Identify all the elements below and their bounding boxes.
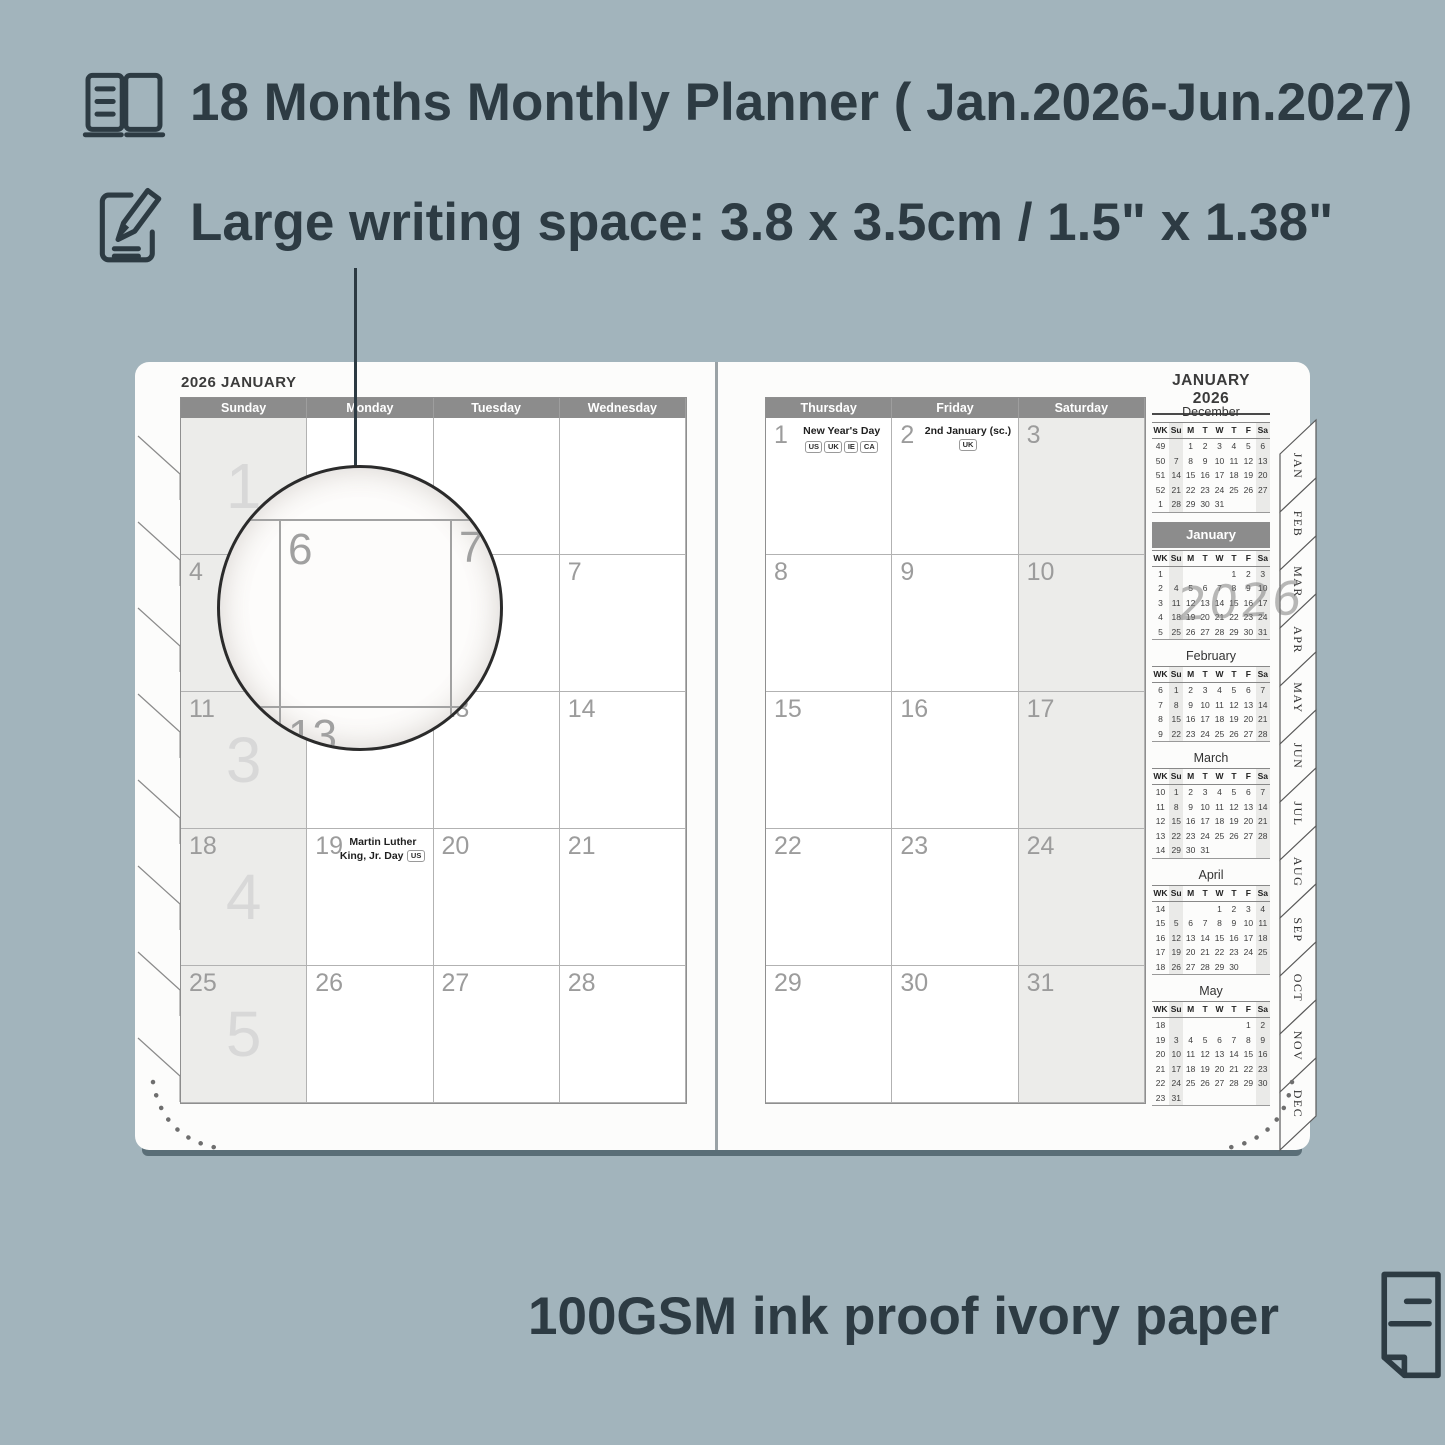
mini-calendar-cell: 20 (1183, 945, 1197, 960)
mini-calendar-cell: 27 (1256, 483, 1270, 498)
mini-calendar-cell: 10 (1152, 785, 1169, 800)
mini-calendar-cell: 6 (1256, 439, 1270, 454)
mini-calendar-cell: 7 (1169, 454, 1183, 469)
date-number: 27 (442, 971, 470, 996)
hatch-line (138, 1038, 180, 1076)
calendar-cell (560, 418, 686, 555)
month-tab-label: SEP (1291, 917, 1305, 942)
mini-calendar-cell: 1 (1183, 439, 1197, 454)
mini-calendar-header-cell: T (1227, 768, 1241, 785)
mini-calendar-cell: 10 (1169, 1047, 1183, 1062)
hatch-line (138, 694, 180, 732)
mini-calendar: FebruaryWKSuMTWTFSa612345677891011121314… (1152, 649, 1270, 742)
mini-calendar-cell (1212, 1018, 1226, 1033)
mini-calendar-cell (1227, 497, 1241, 512)
mini-calendar-header-cell: W (1212, 768, 1226, 785)
date-number: 21 (568, 834, 596, 859)
feature-planner-range-text: 18 Months Monthly Planner ( Jan.2026-Jun… (190, 72, 1412, 133)
mini-calendar-cell: 12 (1152, 814, 1169, 829)
mini-calendar-header-cell: Su (1169, 550, 1183, 567)
mini-calendar-cell: 3 (1198, 683, 1212, 698)
calendar-cell: 7 (560, 555, 686, 692)
country-badge: US (805, 441, 822, 453)
date-number: 7 (568, 560, 582, 585)
week-number: 5 (181, 966, 306, 1102)
mini-calendar-cell: 20 (1152, 1047, 1169, 1062)
mini-calendar-cell: 24 (1169, 1076, 1183, 1091)
mini-calendar-cell: 9 (1256, 1033, 1270, 1048)
page-edge-hatch (136, 428, 182, 1128)
mini-calendar-cell: 13 (1256, 454, 1270, 469)
mini-calendar-cell: 9 (1183, 698, 1197, 713)
mini-calendar-cell (1212, 1091, 1226, 1106)
mini-calendar-header-cell: WK (1152, 550, 1169, 567)
date-number: 26 (315, 971, 343, 996)
mini-calendar-cell: 14 (1198, 931, 1212, 946)
mini-calendar-cell: 2 (1198, 439, 1212, 454)
feature-writing-space-text: Large writing space: 3.8 x 3.5cm / 1.5" … (190, 192, 1333, 253)
mini-calendar-cell: 9 (1198, 454, 1212, 469)
mini-calendar-cell: 14 (1227, 1047, 1241, 1062)
mini-calendar-header-cell: Su (1169, 1001, 1183, 1018)
mini-calendar-cell: 11 (1183, 1047, 1197, 1062)
mini-calendar-cell: 18 (1256, 931, 1270, 946)
feature-paper-text: 100GSM ink proof ivory paper (528, 1286, 1279, 1347)
mini-calendar-cell: 23 (1227, 945, 1241, 960)
mini-calendar-cell: 30 (1198, 497, 1212, 512)
date-number: 23 (900, 834, 928, 859)
mini-calendar-cell: 16 (1152, 931, 1169, 946)
mini-calendar-cell: 19 (1227, 712, 1241, 727)
mini-calendar-cell: 15 (1183, 468, 1197, 483)
mini-calendar-header-cell: T (1198, 422, 1212, 439)
mini-calendar-cell: 28 (1169, 497, 1183, 512)
mini-calendar-cell: 30 (1227, 960, 1241, 975)
mini-calendar-header-cell: T (1227, 1001, 1241, 1018)
date-number: 14 (568, 697, 596, 722)
mini-calendar-cell: 18 (1152, 1018, 1169, 1033)
mini-calendar-cell: 51 (1152, 468, 1169, 483)
mini-calendar-cell: 5 (1152, 625, 1169, 640)
mini-calendar-cell: 28 (1256, 727, 1270, 742)
magnifier-circle: 6 7 13 (217, 465, 503, 751)
mini-calendar-cell: 4 (1212, 683, 1226, 698)
mini-calendar: DecemberWKSuMTWTFSa491234565078910111213… (1152, 405, 1270, 513)
mini-calendar-cell: 21 (1169, 483, 1183, 498)
mini-calendar-cell: 16 (1198, 468, 1212, 483)
mini-calendar-cell: 20 (1241, 712, 1255, 727)
magnifier-grid-line (220, 706, 500, 708)
mini-calendar-header-cell: WK (1152, 1001, 1169, 1018)
mini-calendar-header-cell: Sa (1256, 422, 1270, 439)
mini-calendar-header-cell: F (1241, 422, 1255, 439)
mini-calendar-cell: 18 (1152, 960, 1169, 975)
mini-calendar-cell: 22 (1241, 1062, 1255, 1077)
calendar-cell: 1New Year's DayUSUKIECA (766, 418, 892, 555)
mini-calendar-cell: 52 (1152, 483, 1169, 498)
mini-calendar-title: May (1152, 984, 1270, 998)
mini-calendar-cell: 19 (1198, 1062, 1212, 1077)
mini-calendar-cell: 29 (1183, 497, 1197, 512)
mini-calendar-table: WKSuMTWTFSa18121934567892010111213141516… (1152, 1001, 1270, 1106)
date-number: 1 (774, 423, 788, 448)
mini-calendar-cell: 17 (1198, 712, 1212, 727)
mini-calendar-cell: 13 (1183, 931, 1197, 946)
holiday-badges: USUKIECA (794, 441, 889, 455)
year-watermark: 2026 (1175, 571, 1306, 631)
mini-calendar-cell: 14 (1256, 800, 1270, 815)
date-number: 3 (1027, 423, 1041, 448)
calendar-cell: 255 (181, 966, 307, 1103)
holiday-label: New Year's DayUSUKIECA (794, 425, 889, 454)
mini-calendar-cell: 22 (1183, 483, 1197, 498)
mini-calendar-cell: 29 (1212, 960, 1226, 975)
mini-calendar-header-cell: M (1183, 550, 1197, 567)
date-number: 24 (1027, 834, 1055, 859)
mini-calendar-cell: 16 (1227, 931, 1241, 946)
mini-calendar-cell: 12 (1169, 931, 1183, 946)
callout-connector-line (354, 268, 357, 470)
mini-calendar-header-cell: F (1241, 550, 1255, 567)
open-book-icon (78, 70, 170, 142)
mini-calendar-header-cell: Su (1169, 666, 1183, 683)
mini-calendar-header-cell: WK (1152, 885, 1169, 902)
mini-calendar-cell: 27 (1212, 1076, 1226, 1091)
mini-calendar-cell: 19 (1152, 1033, 1169, 1048)
mini-calendar-cell: 27 (1241, 829, 1255, 844)
day-header-cell: Monday (307, 398, 433, 418)
mini-calendar-cell: 1 (1169, 785, 1183, 800)
date-number: 16 (900, 697, 928, 722)
mini-calendar-cell (1198, 1091, 1212, 1106)
left-page-title: 2026 JANUARY (181, 374, 297, 391)
calendar-cell: 24 (1019, 829, 1145, 966)
mini-calendar-cell: 7 (1152, 698, 1169, 713)
mini-calendar-cell: 14 (1152, 843, 1169, 858)
mini-calendar-cell (1256, 497, 1270, 512)
mini-calendar-header-cell: M (1183, 885, 1197, 902)
mini-calendar-cell: 5 (1227, 683, 1241, 698)
pencil-note-icon (94, 172, 168, 270)
mini-calendar-cell: 13 (1241, 698, 1255, 713)
mini-calendar-cell (1169, 439, 1183, 454)
mini-calendar-cell: 16 (1183, 814, 1197, 829)
mini-calendar-cell: 22 (1152, 1076, 1169, 1091)
mini-calendar-cell: 7 (1256, 785, 1270, 800)
mini-calendar-cell: 49 (1152, 439, 1169, 454)
mini-calendar-header-cell: Su (1169, 422, 1183, 439)
hatch-line (138, 780, 180, 818)
calendar-cell: 30 (892, 966, 1018, 1103)
mini-calendar-cell: 23 (1152, 1091, 1169, 1106)
mini-calendar-cell: 15 (1169, 814, 1183, 829)
mini-calendar-cell: 26 (1198, 1076, 1212, 1091)
magnifier-grid-line (279, 519, 281, 748)
mini-calendar-cell: 22 (1169, 727, 1183, 742)
mini-calendar-cell: 18 (1227, 468, 1241, 483)
mini-calendar-header-cell: W (1212, 422, 1226, 439)
mini-calendar-cell: 20 (1256, 468, 1270, 483)
mini-calendar-cell (1241, 960, 1255, 975)
date-number: 2 (900, 423, 914, 448)
holiday-label: Martin Luther King, Jr. Day US (335, 836, 430, 863)
mini-calendar-cell: 11 (1212, 800, 1226, 815)
mini-calendar-header-cell: M (1183, 768, 1197, 785)
date-number: 8 (774, 560, 788, 585)
mini-calendar-cell: 5 (1198, 1033, 1212, 1048)
calendar-cell: 23 (892, 829, 1018, 966)
hatch-line (138, 866, 180, 904)
mini-calendar-header-cell: WK (1152, 768, 1169, 785)
mini-calendar-cell: 27 (1241, 727, 1255, 742)
calendar-cell: 31 (1019, 966, 1145, 1103)
mini-calendar-cell: 12 (1227, 698, 1241, 713)
mini-calendar-cell: 4 (1183, 1033, 1197, 1048)
country-badge: UK (959, 439, 977, 451)
mini-calendar-cell: 23 (1256, 1062, 1270, 1077)
mini-calendar-cell (1256, 843, 1270, 858)
calendar-cell: 26 (307, 966, 433, 1103)
mini-calendar-cell: 29 (1241, 1076, 1255, 1091)
mini-calendar-cell: 8 (1241, 1033, 1255, 1048)
holiday-label: 2nd January (sc.) UK (920, 425, 1015, 452)
day-header-cell: Thursday (766, 398, 892, 418)
mini-calendar-cell: 28 (1198, 960, 1212, 975)
mini-calendar-table: WKSuMTWTFSa49123456507891011121351141516… (1152, 422, 1270, 513)
day-header-cell: Saturday (1019, 398, 1145, 418)
mini-calendar-cell: 20 (1212, 1062, 1226, 1077)
mini-calendar-cell: 11 (1256, 916, 1270, 931)
mini-calendar-cell: 25 (1183, 1076, 1197, 1091)
month-tab-label: JAN (1291, 453, 1305, 480)
mini-calendar-cell: 8 (1183, 454, 1197, 469)
mini-calendar-cell: 9 (1227, 916, 1241, 931)
mini-calendar-cell: 1 (1212, 902, 1226, 917)
mini-calendar-cell: 22 (1212, 945, 1226, 960)
calendar-cell: 27 (434, 966, 560, 1103)
month-tab-label: AUG (1291, 857, 1305, 888)
mini-calendar-cell: 10 (1241, 916, 1255, 931)
mini-calendar-table: WKSuMTWTFSa14123415567891011161213141516… (1152, 885, 1270, 976)
mini-calendar-header-cell: Su (1169, 885, 1183, 902)
mini-calendar-cell: 25 (1256, 945, 1270, 960)
mini-calendar-cell: 21 (1256, 814, 1270, 829)
mini-calendar-cell (1241, 1091, 1255, 1106)
mini-calendar-cell (1183, 1091, 1197, 1106)
mini-calendar-header-cell: Sa (1256, 550, 1270, 567)
mini-calendar-cell: 11 (1212, 698, 1226, 713)
mini-calendar-cell: 4 (1227, 439, 1241, 454)
mini-calendar-cell (1169, 902, 1183, 917)
mini-calendar-cell: 8 (1152, 712, 1169, 727)
mini-calendar-sidebar: DecemberWKSuMTWTFSa491234565078910111213… (1152, 405, 1270, 1115)
mini-calendar-cell: 4 (1256, 902, 1270, 917)
calendar-cell: 17 (1019, 692, 1145, 829)
mini-calendar-cell: 15 (1169, 712, 1183, 727)
mini-calendar-cell (1256, 1091, 1270, 1106)
mini-calendar-cell: 17 (1241, 931, 1255, 946)
mini-calendar-cell: 2 (1152, 581, 1169, 596)
month-tab-label: APR (1291, 626, 1305, 654)
mini-calendar-cell: 3 (1198, 785, 1212, 800)
month-tab-label: FEB (1291, 511, 1305, 538)
mini-calendar-cell: 17 (1212, 468, 1226, 483)
mini-calendar-cell (1227, 843, 1241, 858)
mini-calendar-table: WKSuMTWTFSa61234567789101112131481516171… (1152, 666, 1270, 742)
mini-calendar-title: February (1152, 649, 1270, 663)
mini-calendar-cell: 3 (1169, 1033, 1183, 1048)
mini-calendar-cell: 2 (1183, 785, 1197, 800)
mini-calendar-header-cell: T (1227, 550, 1241, 567)
mini-calendar-header-cell: F (1241, 885, 1255, 902)
calendar-cell: 28 (560, 966, 686, 1103)
mini-calendar-cell: 23 (1183, 727, 1197, 742)
mini-calendar-header-cell: T (1227, 885, 1241, 902)
date-number: 9 (900, 560, 914, 585)
mini-calendar-cell: 20 (1241, 814, 1255, 829)
magnifier-grid-line (450, 519, 452, 748)
day-header-cell: Friday (892, 398, 1018, 418)
mini-calendar-cell: 10 (1198, 698, 1212, 713)
mini-calendar-cell: 12 (1241, 454, 1255, 469)
mini-calendar-header-cell: T (1198, 550, 1212, 567)
mini-calendar-cell: 3 (1152, 596, 1169, 611)
mini-calendar-cell: 26 (1227, 727, 1241, 742)
mini-calendar-cell (1241, 843, 1255, 858)
mini-calendar-title: April (1152, 868, 1270, 882)
date-number: 17 (1027, 697, 1055, 722)
calendar-cell: 22 (766, 829, 892, 966)
mini-calendar-cell: 1 (1241, 1018, 1255, 1033)
date-number: 10 (1027, 560, 1055, 585)
month-tab-label: JUN (1291, 743, 1305, 770)
mini-calendar-cell: 17 (1169, 1062, 1183, 1077)
calendar-cell: 29 (766, 966, 892, 1103)
day-header-cell: Wednesday (560, 398, 686, 418)
mini-calendar-cell: 21 (1152, 1062, 1169, 1077)
mini-calendar-cell: 8 (1169, 800, 1183, 815)
calendar-cell: 9 (892, 555, 1018, 692)
mini-calendar-header-cell: Su (1169, 768, 1183, 785)
mini-calendar-cell: 22 (1169, 829, 1183, 844)
mini-calendar-header-cell: Sa (1256, 1001, 1270, 1018)
mini-calendar-cell: 2 (1256, 1018, 1270, 1033)
month-tab-label: MAY (1291, 682, 1305, 713)
mini-calendar-header-cell: T (1198, 885, 1212, 902)
hatch-line (138, 522, 180, 560)
mini-calendar-cell: 5 (1241, 439, 1255, 454)
mini-calendar-cell: 28 (1256, 829, 1270, 844)
mini-calendar-cell: 18 (1183, 1062, 1197, 1077)
mini-calendar-cell: 24 (1212, 483, 1226, 498)
mini-calendar: AprilWKSuMTWTFSa141234155678910111612131… (1152, 868, 1270, 976)
mini-calendar-cell: 1 (1152, 567, 1169, 582)
mini-calendar-cell: 26 (1241, 483, 1255, 498)
mini-calendar-cell: 4 (1212, 785, 1226, 800)
month-tab-label: OCT (1291, 974, 1305, 1003)
mini-calendar-cell: 14 (1169, 468, 1183, 483)
mini-calendar-cell (1241, 497, 1255, 512)
mini-calendar-cell: 31 (1169, 1091, 1183, 1106)
mini-calendar-title: December (1152, 405, 1270, 419)
mini-calendar-header-cell: M (1183, 666, 1197, 683)
country-badge: CA (860, 441, 878, 453)
hatch-line (138, 608, 180, 646)
calendar-cell: 19Martin Luther King, Jr. Day US (307, 829, 433, 966)
mini-calendar-cell: 13 (1212, 1047, 1226, 1062)
mini-calendar: MayWKSuMTWTFSa18121934567892010111213141… (1152, 984, 1270, 1106)
date-number: 30 (900, 971, 928, 996)
mini-calendar-title: January (1152, 522, 1270, 548)
mini-calendar-cell: 28 (1227, 1076, 1241, 1091)
mini-calendar-header-cell: W (1212, 666, 1226, 683)
mini-calendar-cell: 25 (1227, 483, 1241, 498)
mini-calendar-cell: 27 (1183, 960, 1197, 975)
mini-calendar-cell: 29 (1169, 843, 1183, 858)
mini-calendar-cell (1198, 902, 1212, 917)
mini-calendar-cell: 30 (1256, 1076, 1270, 1091)
date-number: 20 (442, 834, 470, 859)
mini-calendar-header-cell: F (1241, 768, 1255, 785)
calendar-cell: 22nd January (sc.) UK (892, 418, 1018, 555)
mini-calendar-cell: 10 (1198, 800, 1212, 815)
mini-calendar-header-cell: W (1212, 885, 1226, 902)
mini-calendar-cell: 24 (1198, 727, 1212, 742)
date-number: 28 (568, 971, 596, 996)
mini-calendar-title: March (1152, 751, 1270, 765)
hatch-line (138, 952, 180, 990)
magnifier-number: 13 (288, 714, 337, 751)
mini-calendar-cell: 7 (1227, 1033, 1241, 1048)
mini-calendar-cell: 1 (1169, 683, 1183, 698)
mini-calendar-cell: 15 (1241, 1047, 1255, 1062)
mini-calendar-cell: 18 (1212, 814, 1226, 829)
mini-calendar-cell: 3 (1212, 439, 1226, 454)
mini-calendar-cell: 12 (1227, 800, 1241, 815)
mini-calendar-header-cell: F (1241, 666, 1255, 683)
mini-calendar-cell: 31 (1198, 843, 1212, 858)
mini-calendar-cell: 26 (1227, 829, 1241, 844)
mini-calendar-cell: 5 (1169, 916, 1183, 931)
mini-calendar-cell: 26 (1169, 960, 1183, 975)
calendar-cell: 8 (766, 555, 892, 692)
mini-calendar-header-cell: W (1212, 1001, 1226, 1018)
mini-calendar-cell: 24 (1198, 829, 1212, 844)
mini-calendar-cell: 11 (1227, 454, 1241, 469)
mini-calendar-cell: 25 (1212, 727, 1226, 742)
mini-calendar-header-cell: Sa (1256, 885, 1270, 902)
mini-calendar-cell: 7 (1256, 683, 1270, 698)
mini-calendar-header-cell: W (1212, 550, 1226, 567)
paper-sheet-icon (1370, 1270, 1445, 1382)
magnifier-grid-line (220, 519, 500, 521)
mini-calendar-cell: 6 (1183, 916, 1197, 931)
calendar-cell: 3 (1019, 418, 1145, 555)
mini-calendar-header-cell: WK (1152, 422, 1169, 439)
mini-calendar-cell: 24 (1241, 945, 1255, 960)
hatch-line (138, 436, 180, 474)
mini-calendar-cell: 15 (1152, 916, 1169, 931)
mini-calendar-cell: 23 (1198, 483, 1212, 498)
mini-calendar-cell: 16 (1183, 712, 1197, 727)
mini-calendar-cell (1227, 1091, 1241, 1106)
mini-calendar-cell (1227, 1018, 1241, 1033)
mini-calendar-cell: 10 (1212, 454, 1226, 469)
mini-calendar-cell (1169, 1018, 1183, 1033)
mini-calendar-header-cell: T (1198, 1001, 1212, 1018)
mini-calendar-cell: 13 (1152, 829, 1169, 844)
mini-calendar-header-cell: WK (1152, 666, 1169, 683)
